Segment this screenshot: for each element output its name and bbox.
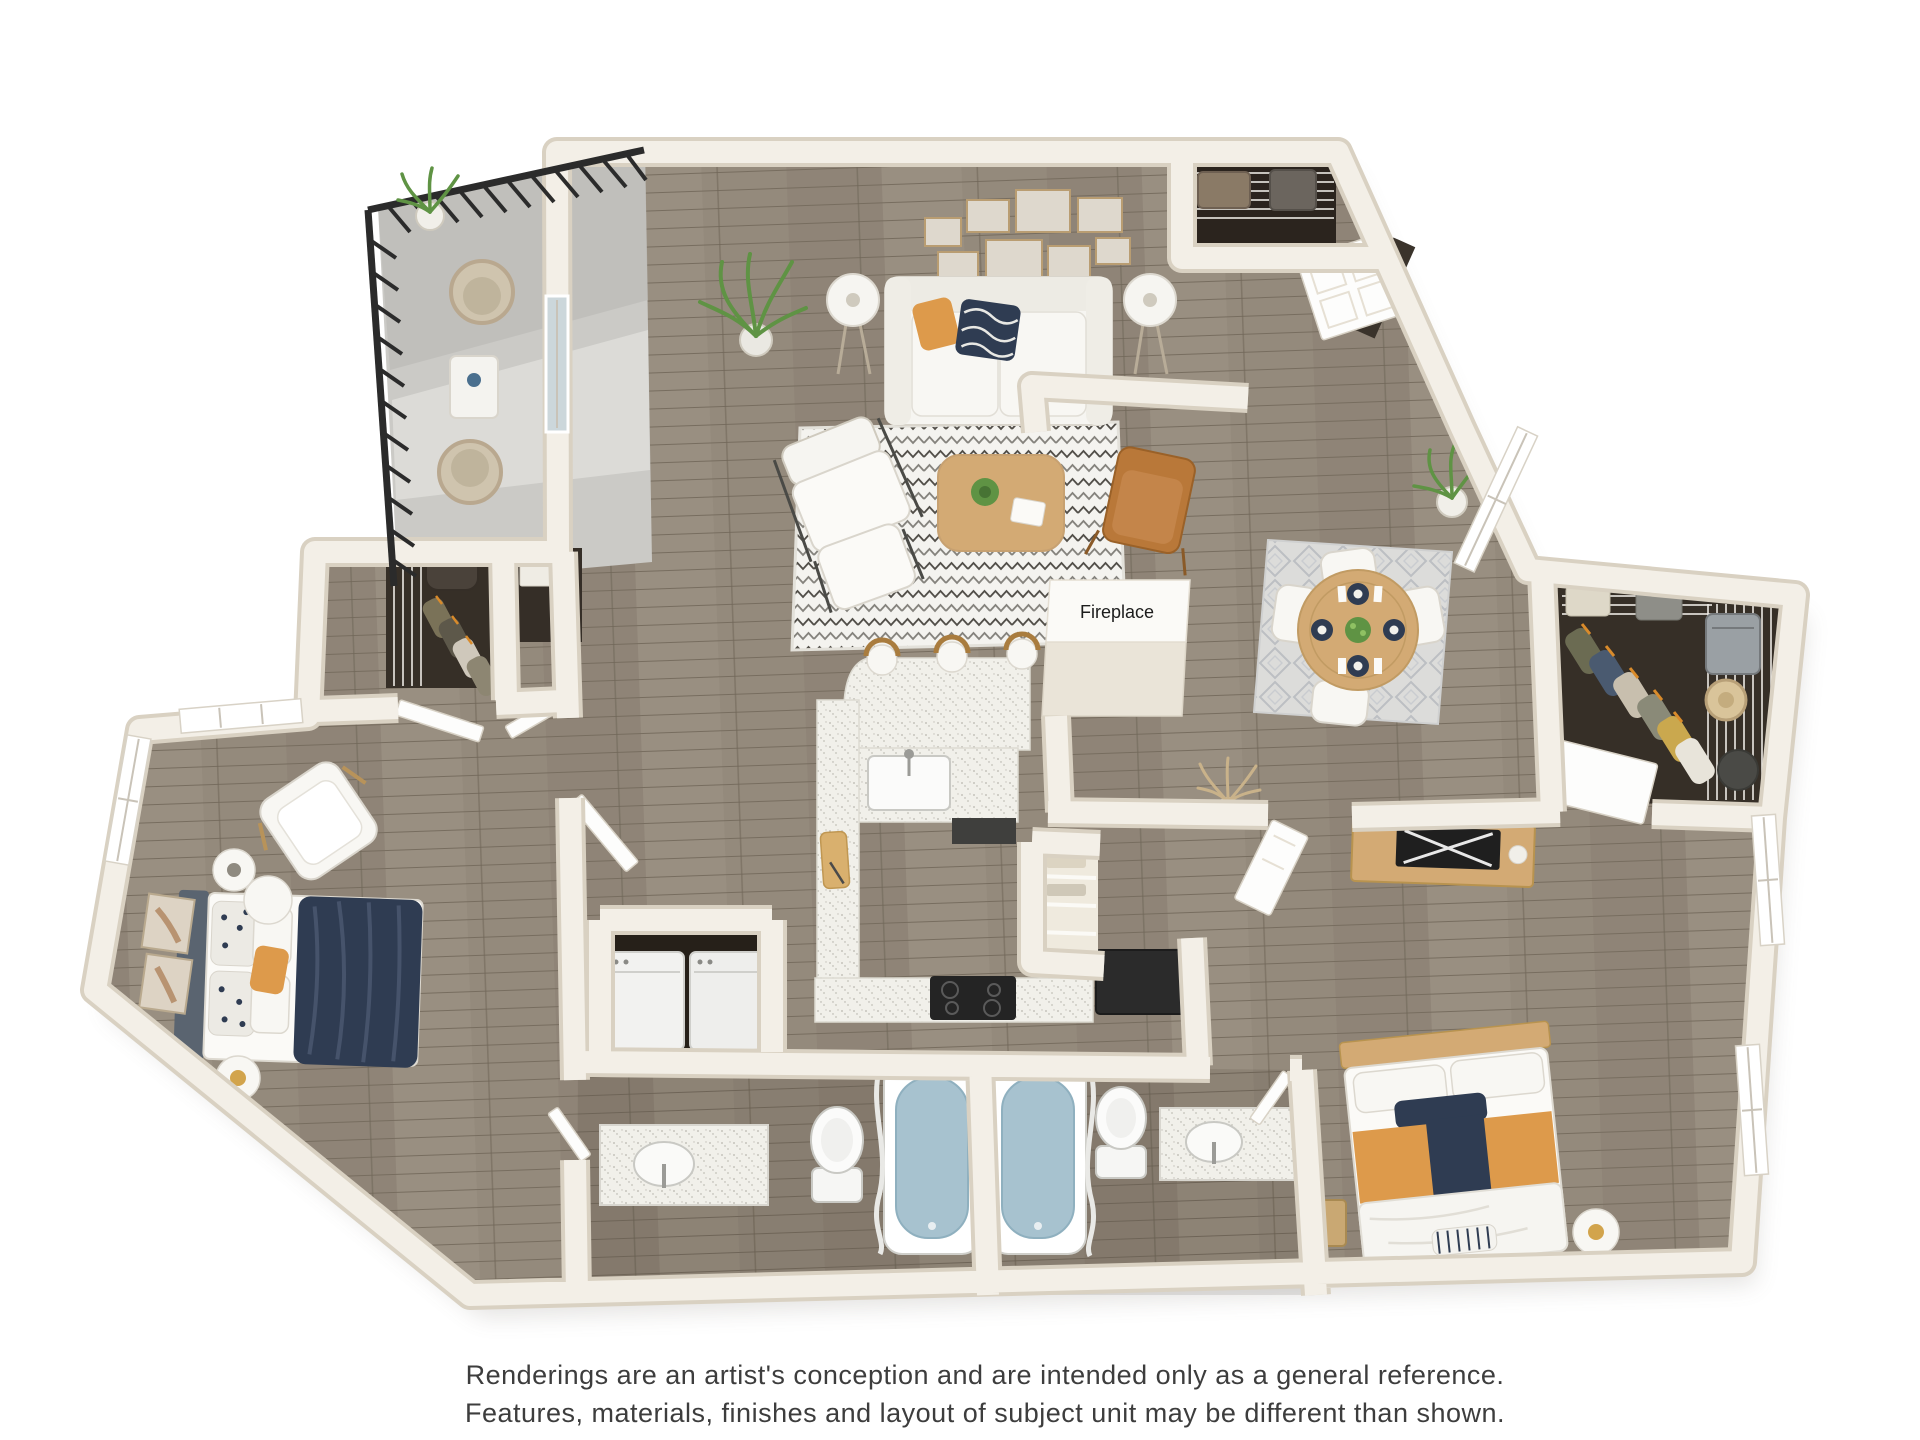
tub-drain-icon bbox=[928, 1222, 936, 1230]
towel-stack bbox=[1046, 884, 1086, 896]
floorplan-rendering: Fireplace bbox=[0, 0, 1920, 1440]
suitcase bbox=[1706, 614, 1760, 674]
dishwasher bbox=[952, 818, 1016, 844]
disclaimer-line-2: Features, materials, finishes and layout… bbox=[465, 1398, 1505, 1428]
balcony-glass-door bbox=[546, 296, 568, 432]
table-decor-icon bbox=[467, 373, 481, 387]
cutting-board bbox=[820, 831, 850, 889]
toilet-2 bbox=[1096, 1087, 1146, 1178]
bathtub-1 bbox=[884, 1064, 980, 1254]
dining-centerpiece bbox=[1345, 617, 1371, 643]
fireplace: Fireplace bbox=[1042, 580, 1190, 716]
tub-drain-icon bbox=[1034, 1222, 1042, 1230]
fireplace-front-face bbox=[1042, 642, 1186, 716]
bedroom1-side-table bbox=[244, 876, 292, 924]
bathtub-2 bbox=[990, 1064, 1086, 1254]
bed2-navy-runner bbox=[1426, 1114, 1492, 1200]
bed-1 bbox=[173, 890, 423, 1068]
dark-hat bbox=[1718, 750, 1758, 790]
dresser-vase bbox=[1509, 845, 1528, 864]
patio-side-table bbox=[450, 356, 498, 418]
entry-basket-1 bbox=[1198, 172, 1250, 208]
entry-basket-2 bbox=[1270, 170, 1316, 210]
bed-2 bbox=[1339, 1021, 1572, 1272]
patio-chair-2 bbox=[439, 441, 501, 503]
toilet-1 bbox=[811, 1107, 863, 1202]
disclaimer: Renderings are an artist's conception an… bbox=[465, 1360, 1505, 1428]
floorplan-canvas: Fireplace bbox=[0, 0, 1920, 1440]
bedside-lamp bbox=[227, 863, 241, 877]
coffee-table bbox=[938, 455, 1064, 551]
patio-chair-1 bbox=[451, 261, 513, 323]
refrigerator bbox=[1096, 950, 1190, 1014]
dryer bbox=[690, 952, 768, 1050]
fireplace-label: Fireplace bbox=[1080, 602, 1154, 622]
table-book bbox=[1010, 497, 1046, 526]
navy-pattern-pillow bbox=[954, 298, 1021, 362]
washer bbox=[606, 952, 684, 1050]
disclaimer-line-1: Renderings are an artist's conception an… bbox=[466, 1360, 1505, 1390]
stove-cooktop bbox=[930, 976, 1016, 1020]
bed2-pillow bbox=[1450, 1052, 1546, 1101]
bedside-lamp-gold bbox=[1588, 1224, 1604, 1240]
